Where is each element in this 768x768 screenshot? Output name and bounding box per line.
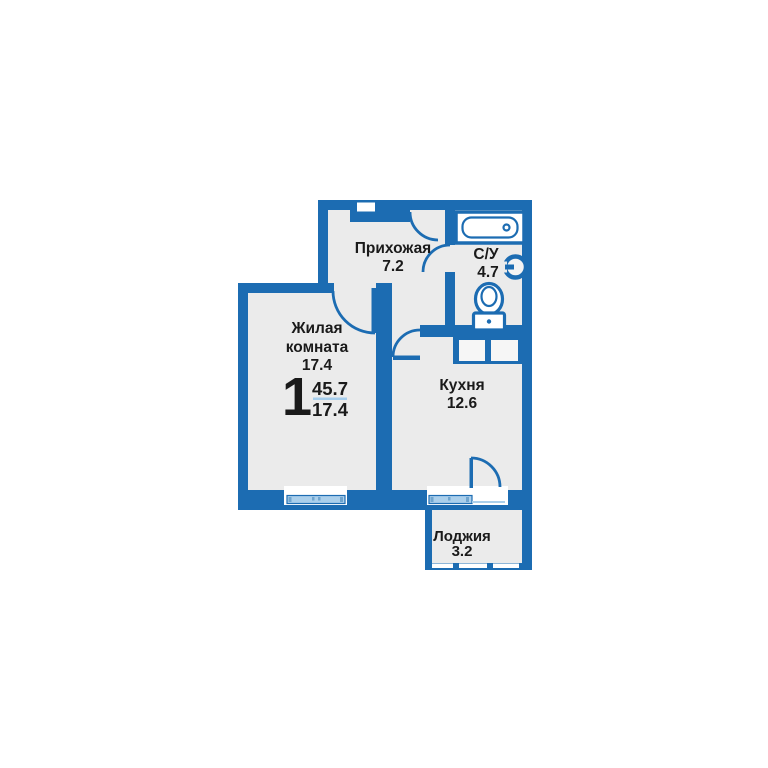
living-door-leaf xyxy=(372,288,377,333)
wall-loggia-left xyxy=(425,505,432,570)
living-name-line2: комната xyxy=(286,339,349,356)
counter-unit-left xyxy=(459,340,485,361)
kitchen-door-leaf xyxy=(393,356,420,361)
window-tick xyxy=(289,497,292,502)
hallway-name: Прихожая xyxy=(355,240,431,257)
balcony-door-leaf xyxy=(470,458,474,488)
wall-hallway-left xyxy=(318,200,328,293)
counter-unit-right xyxy=(491,340,518,361)
living-name-line1: Жилая xyxy=(290,320,342,337)
balcony-door-sill xyxy=(472,501,505,503)
loggia-area: 3.2 xyxy=(452,543,473,560)
loggia-glazing-segment xyxy=(493,564,519,569)
window-tick xyxy=(318,497,321,501)
wall-bathroom-left-upper xyxy=(445,210,455,245)
bathtub-icon xyxy=(456,212,524,243)
toilet-icon xyxy=(474,284,505,331)
living-area-total: 17.4 xyxy=(312,399,349,420)
window-tick xyxy=(340,497,343,502)
wall-right xyxy=(522,200,532,570)
window-tick xyxy=(466,497,469,502)
wall-central xyxy=(376,283,392,490)
bathroom-name: С/У xyxy=(473,246,499,263)
entrance-door-panel xyxy=(356,202,376,213)
living-window-glazing xyxy=(287,496,345,504)
wall-living-top xyxy=(238,283,334,293)
window-tick xyxy=(448,497,451,501)
kitchen-name: Кухня xyxy=(439,377,484,394)
kitchen-area: 12.6 xyxy=(447,395,478,412)
total-area: 45.7 xyxy=(312,378,348,399)
bathroom-area: 4.7 xyxy=(477,264,499,281)
wall-living-left xyxy=(238,283,248,510)
loggia-glazing-segment xyxy=(432,564,453,569)
hallway-area: 7.2 xyxy=(382,258,404,275)
floorplan-page: Прихожая 7.2 С/У 4.7 Жилая комната 17.4 … xyxy=(0,0,768,768)
rooms-count: 1 xyxy=(282,367,312,427)
floorplan-canvas: Прихожая 7.2 С/У 4.7 Жилая комната 17.4 … xyxy=(0,0,768,768)
loggia-glazing-segment xyxy=(459,564,487,569)
wall-bathroom-left-lower xyxy=(445,272,455,330)
window-tick xyxy=(431,497,434,502)
window-tick xyxy=(312,497,315,501)
